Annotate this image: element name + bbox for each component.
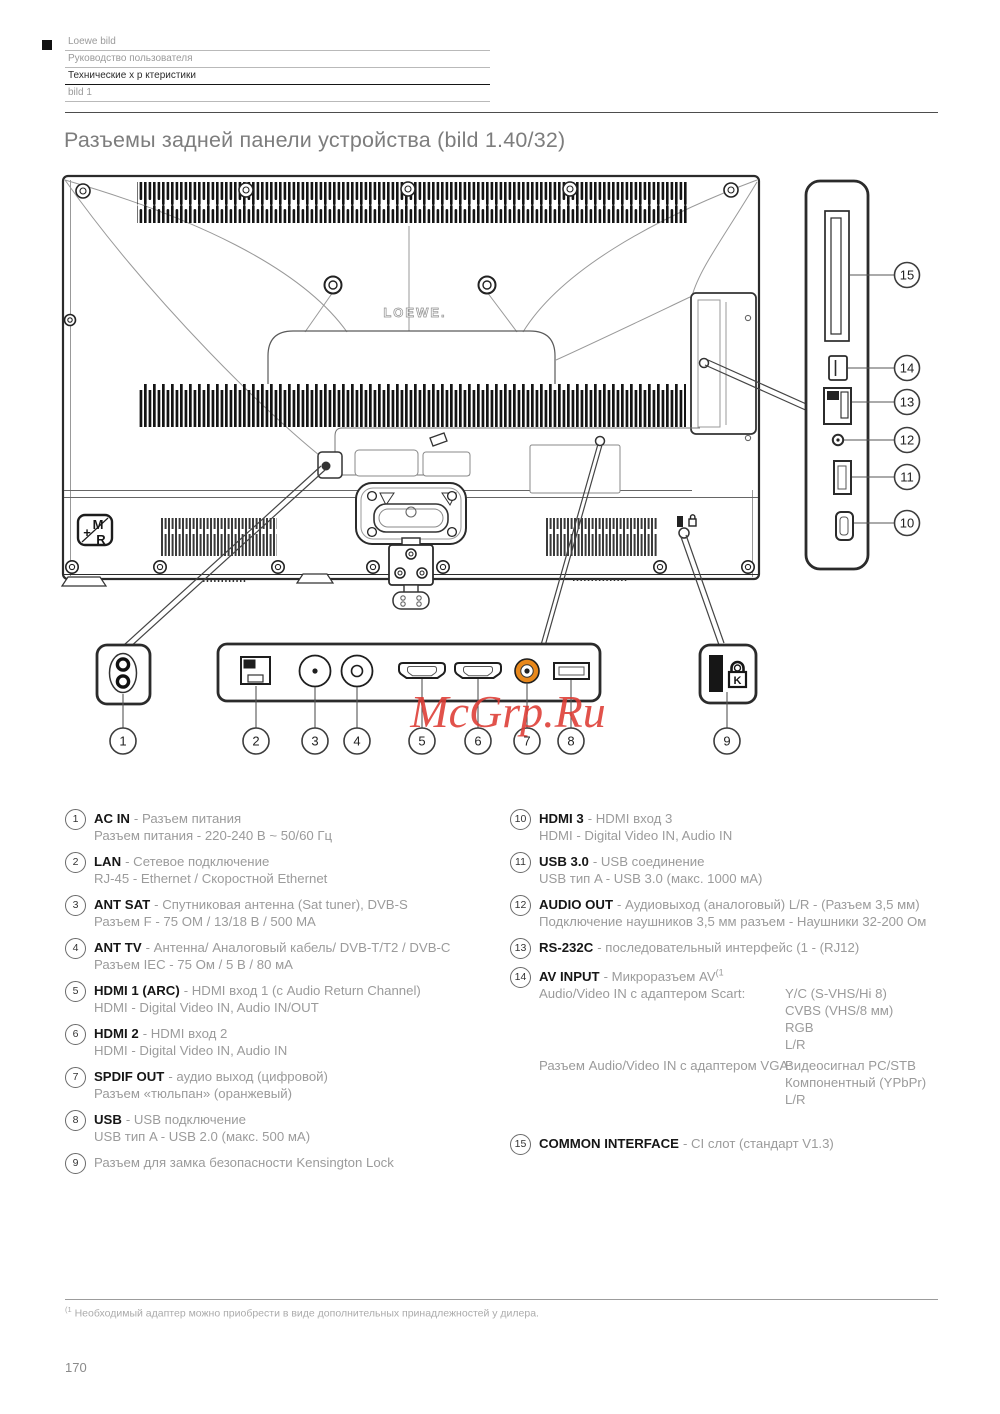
usb3-connector [834,461,851,494]
legend-right-column: 10 HDMI 3- HDMI вход 3 HDMI - Digital Vi… [510,810,970,1164]
scart-value: L/R [785,1036,893,1053]
term: ANT TV [94,940,142,955]
callout-11: 11 [900,470,914,485]
legend-num-4: 4 [65,938,86,959]
scart-label: Audio/Video IN с адаптером Scart: [539,985,970,1002]
footnote: (1 Необходимый адаптер можно приобрести … [65,1305,938,1320]
desc: - HDMI вход 1 (с Audio Return Channel) [184,983,421,998]
desc: - USB соединение [593,854,705,869]
vga-row: Разъем Audio/Video IN с адаптером VGA: В… [539,1057,970,1108]
legend-item-12: 12 AUDIO OUT- Аудиовыход (аналоговый) L/… [510,896,970,930]
desc2: USB тип A - USB 3.0 (макс. 1000 мА) [539,870,970,887]
bottom-right-vent [545,518,658,556]
desc2: RJ-45 - Ethernet / Скоростной Ethernet [94,870,505,887]
rs232c-connector [824,388,851,424]
scart-value: Y/C (S-VHS/Hi 8) [785,985,893,1002]
legend-left-column: 1 AC IN- Разъем питания Разъем питания -… [65,810,505,1183]
desc2: HDMI - Digital Video IN, Audio IN [539,827,970,844]
legend-num-2: 2 [65,852,86,873]
desc2: HDMI - Digital Video IN, Audio IN/OUT [94,999,505,1016]
side-panel-detail: 15 14 13 12 11 10 [806,181,920,569]
legend-item-9: 9 Разъем для замка безопасности Kensingt… [65,1154,505,1174]
legend-item-11: 11 USB 3.0- USB соединение USB тип A - U… [510,853,970,887]
watermark: McGrp.Ru [409,686,605,737]
svg-text:R: R [96,532,106,547]
tv-rear-body: LOEWE. [62,176,759,609]
lan-connector [241,657,270,684]
ci-slot [825,211,849,341]
desc: - Сетевое подключение [125,854,269,869]
callout-3: 3 [311,734,318,749]
callout-14: 14 [900,361,914,376]
callout-9: 9 [723,734,730,749]
callout-2: 2 [252,734,259,749]
desc: - HDMI вход 3 [588,811,673,826]
legend-num-7: 7 [65,1067,86,1088]
legend-item-3: 3 ANT SAT- Спутниковая антенна (Sat tune… [65,896,505,930]
desc2: Разъем «тюльпан» (оранжевый) [94,1085,505,1102]
desc2: Разъем IEC - 75 Ом / 5 В / 80 мА [94,956,505,973]
legend-item-4: 4 ANT TV- Антенна/ Аналоговый кабель/ DV… [65,939,505,973]
ant-sat-connector [300,656,331,687]
legend-item-6: 6 HDMI 2- HDMI вход 2 HDMI - Digital Vid… [65,1025,505,1059]
rear-panel-diagram: LOEWE. [0,0,1000,790]
desc: - Антенна/ Аналоговый кабель/ DVB-T/T2 /… [146,940,451,955]
usb-connector [554,663,589,679]
vga-value: Компонентный (YPbPr) [785,1074,926,1091]
footnote-marker: (1 [716,968,724,978]
callout-12: 12 [900,433,914,448]
kensington-box: K [700,645,756,703]
callout-10: 10 [900,516,914,531]
legend-num-11: 11 [510,852,531,873]
desc2: HDMI - Digital Video IN, Audio IN [94,1042,505,1059]
legend-num-13: 13 [510,938,531,959]
scart-value: CVBS (VHS/8 мм) [785,1002,893,1019]
desc: - Спутниковая антенна (Sat tuner), DVB-S [154,897,408,912]
desc2: Разъем F - 75 ОМ / 13/18 В / 500 МА [94,913,505,930]
desc: - Разъем питания [134,811,241,826]
term: HDMI 1 (ARC) [94,983,180,998]
desc2: Подключение наушников 3,5 мм разъем - На… [539,913,970,930]
page-number: 170 [65,1360,87,1375]
legend-num-12: 12 [510,895,531,916]
desc: - Аудиовыход (аналоговый) L/R - (Разъем … [617,897,920,912]
legend-num-8: 8 [65,1110,86,1131]
loewe-logo: LOEWE. [383,305,446,320]
spdif-out-connector [515,659,539,683]
legend-num-14: 14 [510,967,531,988]
desc: - аудио выход (цифровой) [168,1069,328,1084]
legend-item-13: 13 RS-232C- последовательный интерфейс (… [510,939,970,959]
legend-item-10: 10 HDMI 3- HDMI вход 3 HDMI - Digital Vi… [510,810,970,844]
svg-text:K: K [734,675,742,687]
manual-page: Loewe bild Руководство пользователя Техн… [0,0,1000,1414]
term: COMMON INTERFACE [539,1136,679,1151]
term: AC IN [94,811,130,826]
term: USB [94,1112,122,1127]
hdmi1-connector [399,663,445,678]
desc: Разъем для замка безопасности Kensington… [94,1155,394,1170]
term: AUDIO OUT [539,897,613,912]
term: USB 3.0 [539,854,589,869]
legend-num-5: 5 [65,981,86,1002]
term: LAN [94,854,121,869]
vga-value: L/R [785,1091,926,1108]
svg-text:M: M [93,517,104,532]
legend-item-15: 15 COMMON INTERFACE- CI слот (стандарт V… [510,1135,970,1155]
hdmi2-connector [455,663,501,678]
kensington-lock-icon: K [729,662,746,687]
legend-item-8: 8 USB- USB подключение USB тип A - USB 2… [65,1111,505,1145]
legend-num-1: 1 [65,809,86,830]
legend-item-5: 5 HDMI 1 (ARC)- HDMI вход 1 (с Audio Ret… [65,982,505,1016]
legend-num-6: 6 [65,1024,86,1045]
term: AV INPUT [539,969,600,984]
desc: - последовательный интерфейс (1 - (RJ12) [597,940,859,955]
audio-out-jack [833,435,843,445]
legend-item-14: 14 AV INPUT- Микроразъем AV(1 Audio/Vide… [510,968,970,1126]
callout-4: 4 [353,734,360,749]
svg-text:+: + [83,525,91,540]
legend-num-9: 9 [65,1153,86,1174]
legend-num-10: 10 [510,809,531,830]
hdmi3-connector [836,512,853,540]
av-input-connector [829,356,847,380]
desc: - CI слот (стандарт V1.3) [683,1136,834,1151]
vga-value: Видеосигнал PC/STB [785,1057,926,1074]
bottom-left-vent [160,518,277,556]
callout-13: 13 [900,395,914,410]
footnote-text: Необходимый адаптер можно приобрести в в… [72,1308,539,1320]
callout-1: 1 [119,734,126,749]
footnote-marker: (1 [65,1305,72,1314]
desc2: Разъем питания - 220-240 В ~ 50/60 Гц [94,827,505,844]
callout-15: 15 [900,268,914,283]
desc: - USB подключение [126,1112,246,1127]
legend-item-7: 7 SPDIF OUT- аудио выход (цифровой) Разъ… [65,1068,505,1102]
desc: - HDMI вход 2 [143,1026,228,1041]
term: HDMI 3 [539,811,584,826]
scart-row: Audio/Video IN с адаптером Scart: Y/C (S… [539,985,970,1053]
desc: - Микроразъем AV [604,969,716,984]
scart-value: RGB [785,1019,893,1036]
legend-num-15: 15 [510,1134,531,1155]
term: SPDIF OUT [94,1069,164,1084]
middle-vent [138,384,686,427]
legend-item-2: 2 LAN- Сетевое подключение RJ-45 - Ether… [65,853,505,887]
term: RS-232C [539,940,593,955]
term: ANT SAT [94,897,150,912]
footnote-divider [65,1299,938,1300]
mr-badge: M + R [78,515,112,547]
desc2: USB тип A - USB 2.0 (макс. 500 мА) [94,1128,505,1145]
legend-num-3: 3 [65,895,86,916]
term: HDMI 2 [94,1026,139,1041]
ant-tv-connector [342,656,373,687]
legend-item-1: 1 AC IN- Разъем питания Разъем питания -… [65,810,505,844]
